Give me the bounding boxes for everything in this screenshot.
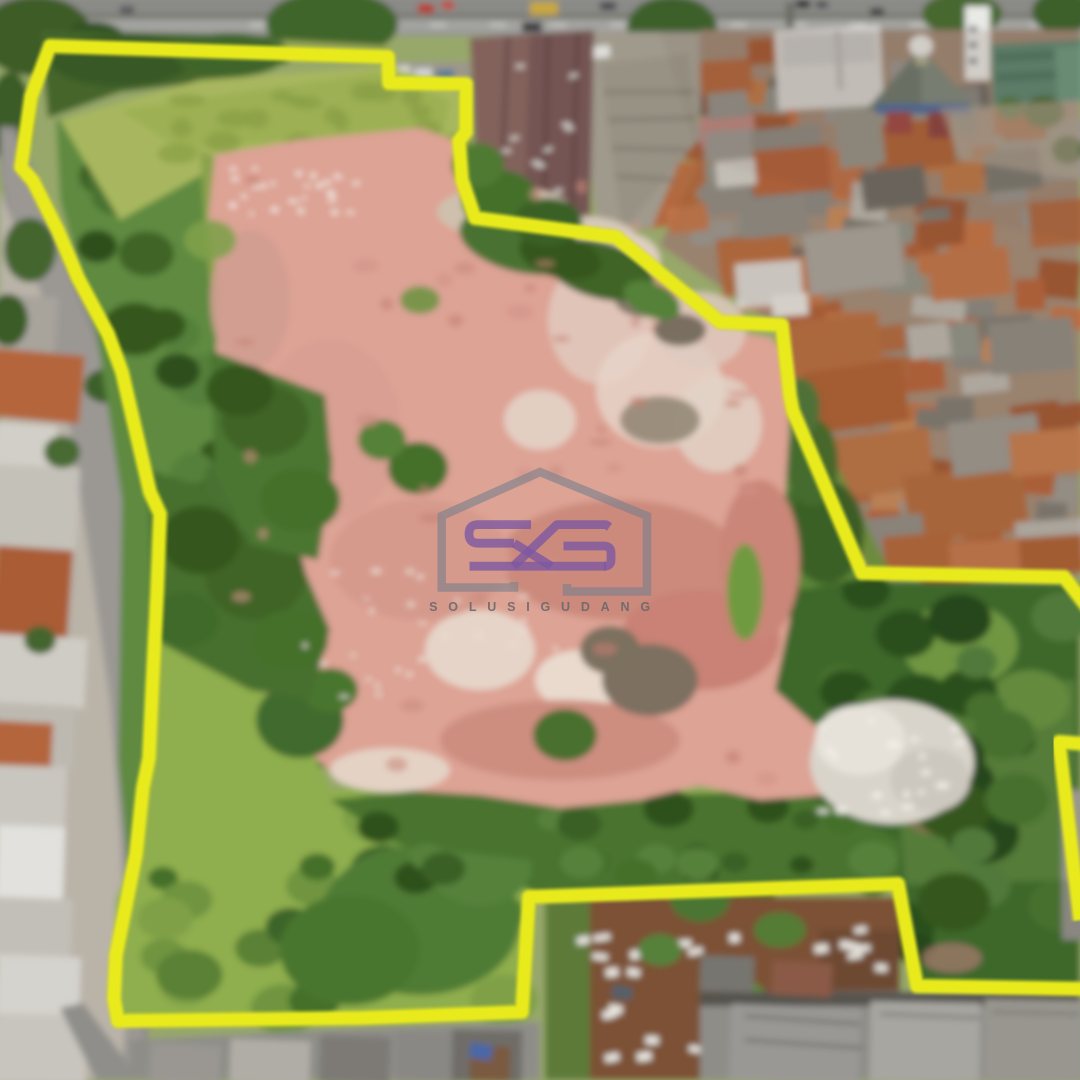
svg-text:SOLUSIGUDANG: SOLUSIGUDANG (429, 600, 661, 614)
